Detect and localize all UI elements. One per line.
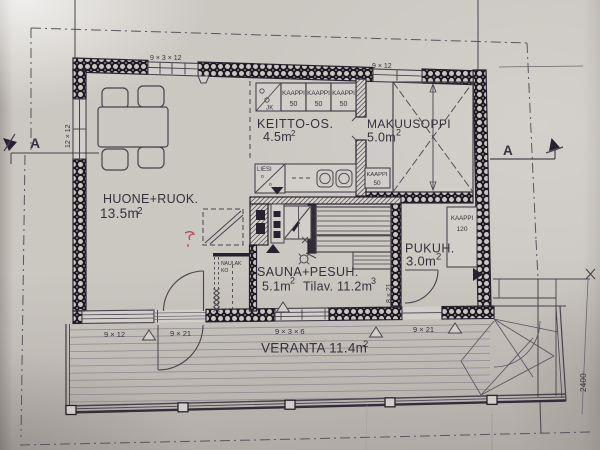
svg-text:50: 50 bbox=[315, 101, 323, 108]
svg-text:50: 50 bbox=[290, 101, 298, 108]
svg-text:2: 2 bbox=[396, 128, 402, 138]
svg-text:HUONE+RUOK.: HUONE+RUOK. bbox=[103, 192, 198, 206]
svg-text:KAAPPI: KAAPPI bbox=[367, 172, 388, 178]
svg-text:SAUNA+PESUH.: SAUNA+PESUH. bbox=[257, 265, 359, 279]
svg-text:120: 120 bbox=[456, 226, 467, 233]
svg-text:13.5m: 13.5m bbox=[100, 206, 139, 221]
svg-text:50: 50 bbox=[340, 101, 348, 108]
svg-text:KAAPPI: KAAPPI bbox=[451, 215, 474, 222]
svg-text:NAULAK: NAULAK bbox=[221, 261, 242, 267]
svg-text:9 × 21: 9 × 21 bbox=[170, 329, 191, 338]
svg-text:2: 2 bbox=[291, 129, 296, 138]
svg-text:9 × 3 × 12: 9 × 3 × 12 bbox=[150, 55, 182, 62]
svg-text:12 × 12: 12 × 12 bbox=[65, 124, 72, 148]
svg-text:2: 2 bbox=[290, 276, 296, 286]
svg-text:9 × 12: 9 × 12 bbox=[372, 63, 392, 70]
svg-text:LIESI: LIESI bbox=[257, 167, 272, 173]
svg-text:A: A bbox=[503, 143, 513, 158]
svg-text:5.1m: 5.1m bbox=[262, 280, 291, 294]
svg-text:o: o bbox=[261, 174, 264, 180]
svg-text:4.5m: 4.5m bbox=[263, 130, 292, 144]
svg-text:KO: KO bbox=[221, 268, 228, 274]
svg-text:2: 2 bbox=[436, 252, 442, 263]
svg-text:KAAPPI: KAAPPI bbox=[282, 90, 305, 97]
svg-text:JK: JK bbox=[266, 106, 273, 112]
svg-text:2: 2 bbox=[137, 206, 143, 217]
svg-text:3.0m: 3.0m bbox=[406, 254, 436, 269]
svg-text:2400: 2400 bbox=[579, 373, 588, 392]
svg-text:KAAPPI: KAAPPI bbox=[332, 90, 355, 97]
svg-text:5.0m: 5.0m bbox=[367, 131, 396, 145]
svg-text:MAKUUSOPPI: MAKUUSOPPI bbox=[367, 117, 451, 131]
svg-text:3: 3 bbox=[371, 276, 377, 286]
svg-text:9 × 3 × 6: 9 × 3 × 6 bbox=[275, 327, 305, 336]
svg-text:8 × 21: 8 × 21 bbox=[386, 283, 393, 303]
svg-text:VERANTA 11.4m: VERANTA 11.4m bbox=[261, 341, 367, 356]
svg-text:9 × 21: 9 × 21 bbox=[413, 325, 434, 334]
svg-text:9 × 12: 9 × 12 bbox=[104, 330, 125, 339]
svg-text:2: 2 bbox=[363, 339, 369, 350]
svg-text:50: 50 bbox=[373, 180, 381, 187]
svg-text:Tilav. 11.2m: Tilav. 11.2m bbox=[303, 280, 372, 294]
svg-text:KAAPPI: KAAPPI bbox=[307, 90, 330, 97]
svg-text:A: A bbox=[30, 135, 41, 151]
